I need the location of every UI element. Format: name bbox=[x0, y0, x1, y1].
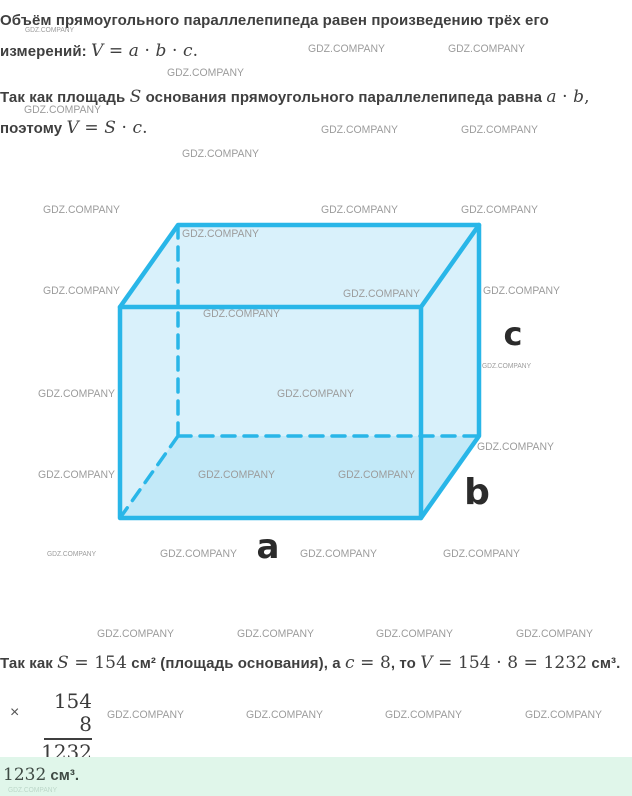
text-segment: · bbox=[139, 41, 156, 61]
text-segment: · bbox=[116, 118, 133, 138]
text-segment: = bbox=[103, 41, 128, 61]
watermark: GDZ.COMPANY bbox=[167, 67, 244, 79]
text-segment: 1232 bbox=[3, 765, 46, 785]
text-segment: c bbox=[183, 41, 193, 61]
watermark: GDZ.COMPANY bbox=[525, 709, 602, 721]
watermark: GDZ.COMPANY bbox=[182, 148, 259, 160]
column-multiplication: × 154 8 1232 bbox=[8, 690, 92, 764]
multiplier: 8 bbox=[8, 713, 92, 736]
text-segment: = 8 bbox=[355, 653, 391, 673]
text-segment: b bbox=[156, 41, 167, 61]
cuboid-figure: a b c bbox=[95, 200, 535, 570]
text-segment: c bbox=[132, 118, 142, 138]
watermark: GDZ.COMPANY bbox=[107, 709, 184, 721]
text-segment: Так как bbox=[0, 655, 57, 672]
text-segment: V bbox=[91, 41, 103, 61]
watermark: GDZ.COMPANY bbox=[246, 709, 323, 721]
text-segment: , bbox=[584, 87, 590, 107]
watermark: GDZ.COMPANY bbox=[376, 628, 453, 640]
text-segment: измерений: bbox=[0, 43, 91, 60]
text-segment: S bbox=[104, 118, 116, 138]
text-segment: b bbox=[573, 87, 584, 107]
watermark: GDZ.COMPANY bbox=[97, 628, 174, 640]
text-segment: S bbox=[130, 87, 142, 107]
cuboid-bottom-face bbox=[120, 436, 479, 518]
text-segment: = 154 bbox=[69, 653, 127, 673]
text-segment: a bbox=[546, 87, 556, 107]
text-segment: см³. bbox=[46, 767, 79, 784]
intro-line-2-formula-volume: измерений: V = a · b · c. bbox=[0, 40, 632, 63]
watermark: GDZ.COMPANY bbox=[237, 628, 314, 640]
dimension-label-b: b bbox=[464, 472, 490, 513]
text-segment: Объём прямоугольного параллелепипеда рав… bbox=[0, 12, 549, 29]
text-segment: S bbox=[57, 653, 69, 673]
multiplication-sign: × bbox=[10, 704, 19, 722]
text-segment: . bbox=[193, 41, 199, 61]
intro-line-1: Объём прямоугольного параллелепипеда рав… bbox=[0, 10, 632, 32]
text-segment: = bbox=[79, 118, 104, 138]
text-segment: поэтому bbox=[0, 120, 66, 137]
multiplicand: 154 bbox=[8, 690, 92, 713]
dimension-label-a: a bbox=[257, 527, 280, 567]
text-segment: V bbox=[420, 653, 432, 673]
intro-line-4-formula-base: поэтому V = S · c. bbox=[0, 117, 632, 140]
text-segment: , то bbox=[391, 655, 420, 672]
dimension-label-c: c bbox=[504, 315, 523, 353]
watermark: GDZ.COMPANY bbox=[516, 628, 593, 640]
solution-page: { "watermark": { "label": "GDZ.COMPANY" … bbox=[0, 0, 632, 796]
solution-line: Так как S = 154 см² (площадь основания),… bbox=[0, 652, 632, 675]
final-answer: 1232 см³. bbox=[3, 757, 79, 794]
intro-line-3: Так как площадь S основания прямоугольно… bbox=[0, 86, 632, 109]
watermark: GDZ.COMPANY bbox=[385, 709, 462, 721]
text-segment: см² (площадь основания), а bbox=[127, 655, 345, 672]
text-segment: . bbox=[142, 118, 148, 138]
text-segment: = 154 · 8 = 1232 bbox=[433, 653, 588, 673]
text-segment: основания прямоугольного параллелепипеда… bbox=[141, 89, 546, 106]
text-segment: V bbox=[66, 118, 78, 138]
text-segment: a bbox=[129, 41, 139, 61]
text-segment: · bbox=[557, 87, 574, 107]
answer-highlight-band: 1232 см³. bbox=[0, 757, 632, 796]
text-segment: c bbox=[345, 653, 355, 673]
text-segment: Так как площадь bbox=[0, 89, 130, 106]
text-segment: см³. bbox=[587, 655, 620, 672]
text-segment: · bbox=[167, 41, 184, 61]
watermark: GDZ.COMPANY bbox=[47, 551, 96, 558]
